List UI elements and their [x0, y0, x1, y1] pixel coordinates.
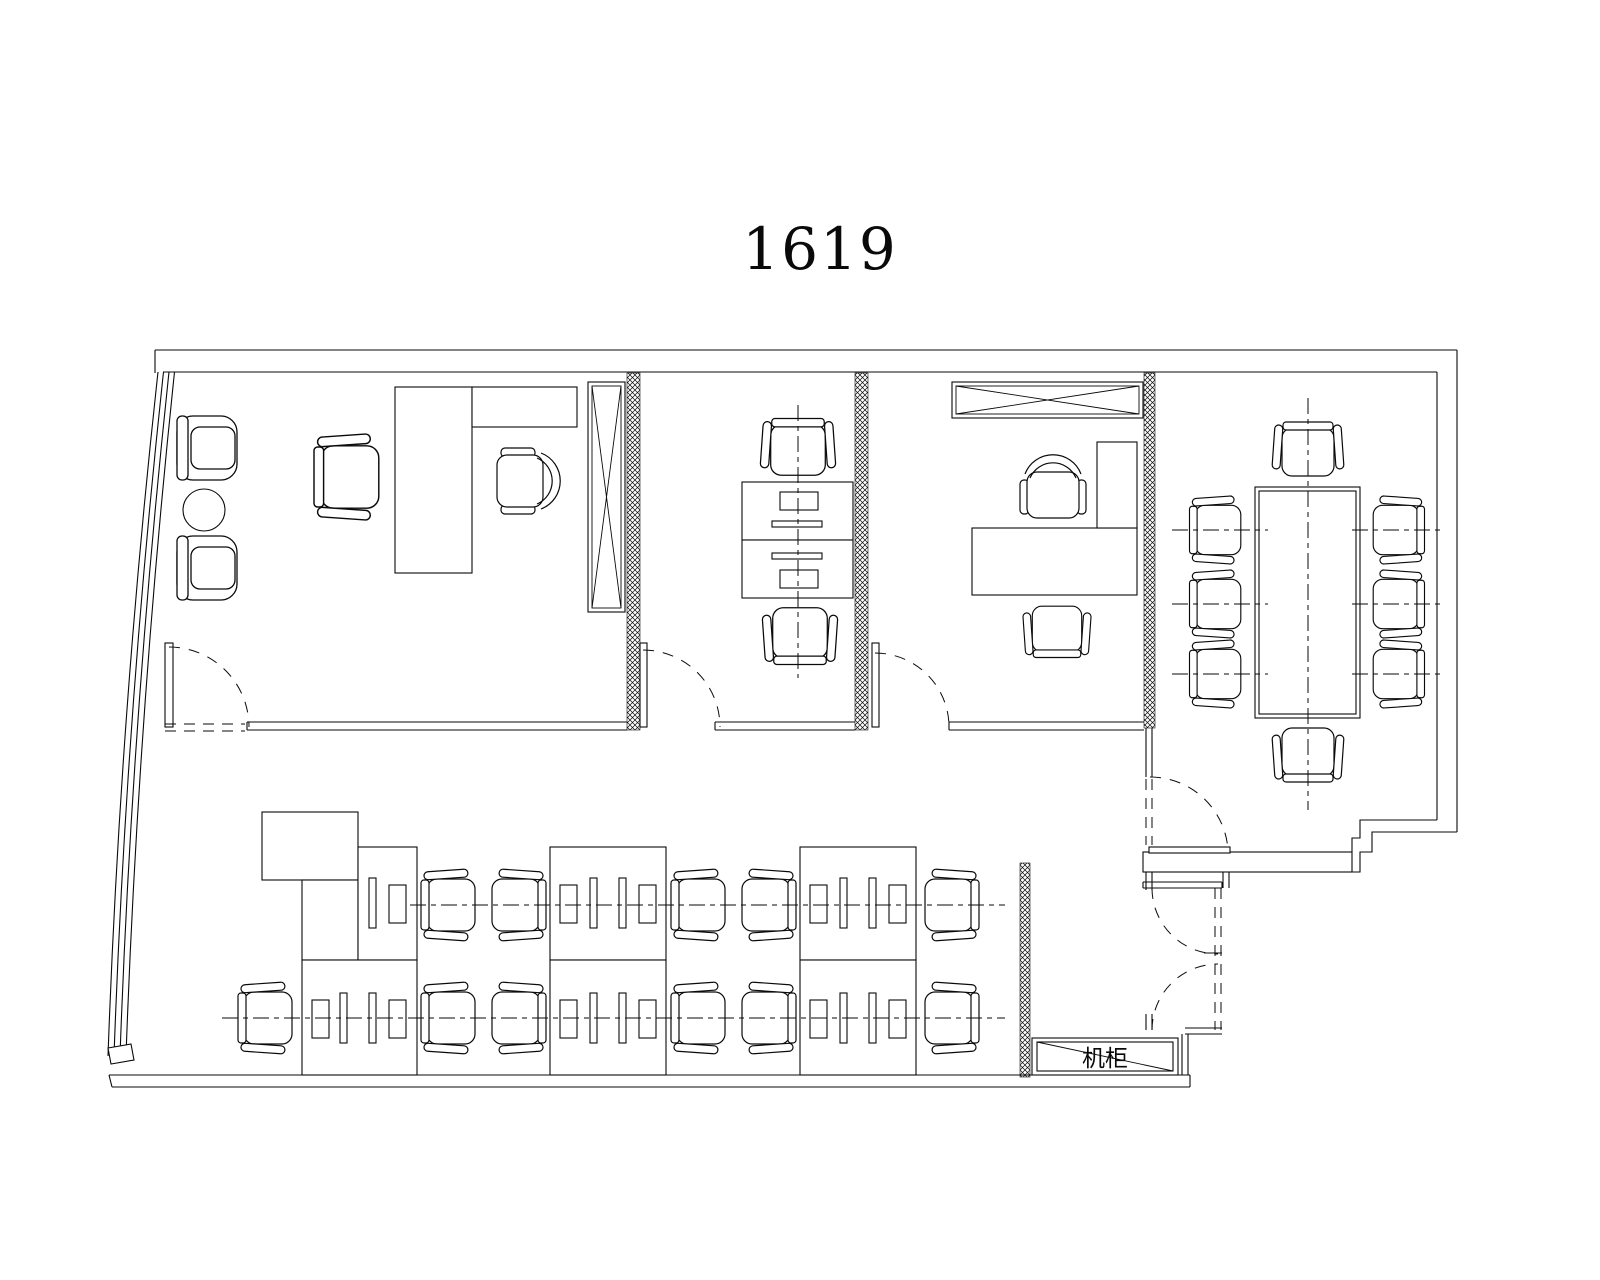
keyboard [389, 1000, 406, 1038]
hatched-wall [855, 373, 868, 730]
round-table [183, 489, 225, 531]
door-leaf [1149, 847, 1230, 853]
wall-path [108, 1044, 134, 1064]
keyboard [810, 885, 827, 923]
door-leaf [640, 643, 647, 727]
door-swing-arc [643, 650, 720, 727]
monitor [619, 878, 626, 928]
desk [302, 880, 358, 960]
wall-path [1352, 820, 1437, 852]
hatched-wall [627, 373, 640, 730]
door-leaf [165, 643, 173, 727]
wall-path [1352, 832, 1457, 872]
desk [472, 387, 577, 427]
desk [395, 387, 472, 573]
keyboard [810, 1000, 827, 1038]
keyboard [889, 885, 906, 923]
exec-chair [1020, 455, 1086, 518]
keyboard [389, 885, 406, 923]
cabinet-label: 机柜 [1082, 1045, 1128, 1071]
monitor [840, 878, 847, 928]
keyboard [772, 521, 822, 527]
furniture-group [165, 382, 1425, 1075]
plan-title: 1619 [700, 215, 940, 283]
keyboard [312, 1000, 329, 1038]
monitor [340, 993, 347, 1043]
door-swing-arc [1152, 964, 1218, 1030]
task-chair [314, 434, 379, 521]
arm-chair [177, 536, 237, 600]
keyboard [639, 885, 656, 923]
keyboard [560, 885, 577, 923]
arm-chair [177, 416, 237, 480]
monitor [369, 878, 376, 928]
wall-band [1143, 852, 1352, 872]
monitor [780, 492, 818, 510]
monitor [590, 878, 597, 928]
hatched-wall [1144, 373, 1155, 728]
desk-return [1097, 442, 1137, 528]
keyboard [889, 1000, 906, 1038]
task-chair [1023, 606, 1092, 657]
door-swing-arc [875, 653, 949, 727]
door-swing-arc [1150, 777, 1228, 850]
floor-plan-svg: 机柜 [0, 0, 1600, 1280]
monitor [619, 993, 626, 1043]
desk [358, 847, 417, 960]
task-chair [762, 608, 838, 665]
exec-chair [497, 448, 560, 514]
cabinet [262, 812, 358, 880]
door-leaf [872, 643, 879, 727]
wall-line [109, 1075, 112, 1087]
desk [972, 528, 1137, 595]
keyboard [560, 1000, 577, 1038]
door-swing-arc [1152, 888, 1218, 954]
monitor [869, 878, 876, 928]
keyboard [639, 1000, 656, 1038]
floor-plan-page: 机柜 1619 [0, 0, 1600, 1280]
door-swing-arc [169, 647, 249, 727]
monitor [780, 570, 818, 588]
keyboard [772, 553, 822, 559]
hatched-wall [1020, 863, 1030, 1077]
